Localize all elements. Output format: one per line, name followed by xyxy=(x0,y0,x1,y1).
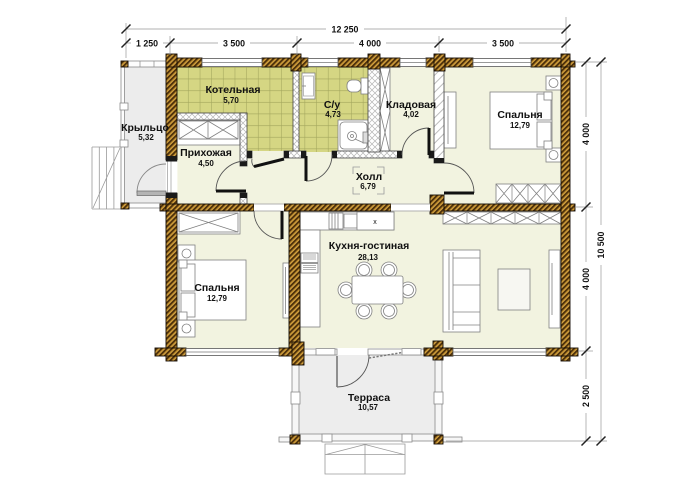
svg-text:12 250: 12 250 xyxy=(332,25,359,35)
svg-text:Спальня: Спальня xyxy=(497,109,542,121)
svg-text:10,57: 10,57 xyxy=(358,403,379,412)
svg-text:4,50: 4,50 xyxy=(198,159,214,168)
svg-text:4,02: 4,02 xyxy=(403,110,419,119)
svg-text:4 000: 4 000 xyxy=(581,268,591,290)
svg-text:3 500: 3 500 xyxy=(223,39,245,49)
svg-text:Спальня: Спальня xyxy=(194,282,239,294)
svg-text:6,79: 6,79 xyxy=(360,182,376,191)
svg-text:5,32: 5,32 xyxy=(138,133,154,142)
svg-text:Прихожая: Прихожая xyxy=(180,147,232,159)
svg-text:x: x xyxy=(373,219,377,226)
svg-text:28,13: 28,13 xyxy=(358,253,379,262)
svg-text:4 000: 4 000 xyxy=(359,39,381,49)
svg-text:4,73: 4,73 xyxy=(325,110,341,119)
svg-text:12,79: 12,79 xyxy=(207,294,228,303)
svg-text:4 000: 4 000 xyxy=(581,123,591,145)
svg-text:12,79: 12,79 xyxy=(510,121,531,130)
svg-text:3 500: 3 500 xyxy=(492,39,514,49)
svg-text:Котельная: Котельная xyxy=(206,84,261,96)
svg-text:2 500: 2 500 xyxy=(581,385,591,407)
svg-text:Кухня-гостиная: Кухня-гостиная xyxy=(329,240,409,252)
svg-text:10 500: 10 500 xyxy=(596,231,606,258)
svg-text:1 250: 1 250 xyxy=(136,39,158,49)
svg-text:5,70: 5,70 xyxy=(223,96,239,105)
